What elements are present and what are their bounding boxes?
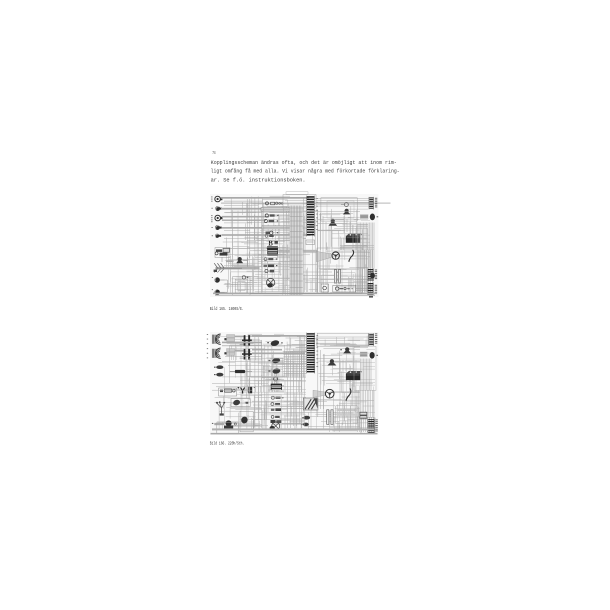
svg-text:ligt omfång få med alla. Vi vi: ligt omfång få med alla. Vi visar några … bbox=[211, 168, 400, 175]
svg-text:74: 74 bbox=[212, 150, 216, 156]
svg-text:Bild 166. 220h/Sth.: Bild 166. 220h/Sth. bbox=[210, 440, 245, 446]
svg-text:Bild 165. 1800S/E.: Bild 165. 1800S/E. bbox=[210, 306, 244, 312]
svg-text:Y: Y bbox=[240, 387, 246, 397]
svg-text:ar. Se f.ö. instruktionsboken.: ar. Se f.ö. instruktionsboken. bbox=[211, 178, 306, 184]
svg-text:Kopplingsscheman ändras ofta,: Kopplingsscheman ändras ofta, och det är… bbox=[211, 160, 397, 166]
